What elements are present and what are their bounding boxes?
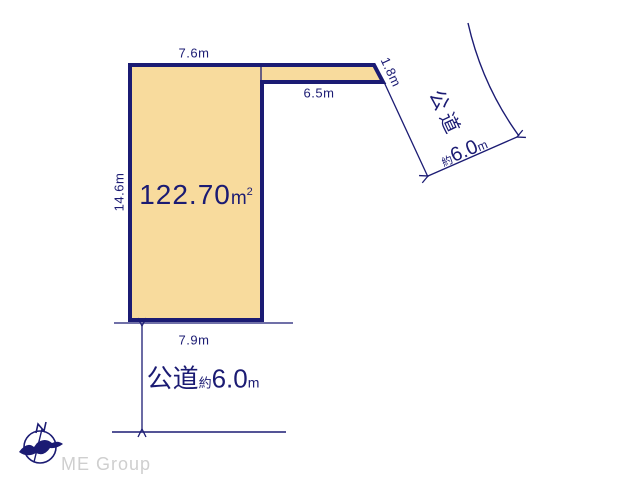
dimension-flag-bottom: 6.5m	[304, 86, 335, 101]
right-road-curve	[468, 23, 519, 136]
dimension-left: 14.6m	[112, 173, 127, 212]
bottom-road-width-value: 6.0	[212, 364, 248, 394]
area-unit-exponent: 2	[247, 186, 253, 198]
lot-plan-diagram: 7.6m 6.5m 1.8m 14.6m 7.9m 122.70m2 公道約6.…	[0, 0, 640, 480]
plan-drawing	[0, 0, 640, 480]
dimension-top: 7.6m	[179, 46, 210, 61]
bottom-road-width-unit: m	[248, 375, 260, 391]
parcel-area-label: 122.70m2	[139, 179, 253, 211]
bottom-road-approx: 約	[199, 376, 212, 391]
area-value: 122.70	[139, 179, 231, 210]
bottom-road-name: 公道	[147, 364, 199, 394]
dimension-bottom: 7.9m	[179, 333, 210, 348]
bottom-road-label: 公道約6.0m	[147, 359, 260, 396]
right-road-edge-line	[384, 82, 428, 177]
area-unit: m	[231, 188, 247, 209]
compass-north-icon	[19, 422, 63, 463]
logo-text: ME Group	[61, 454, 151, 475]
